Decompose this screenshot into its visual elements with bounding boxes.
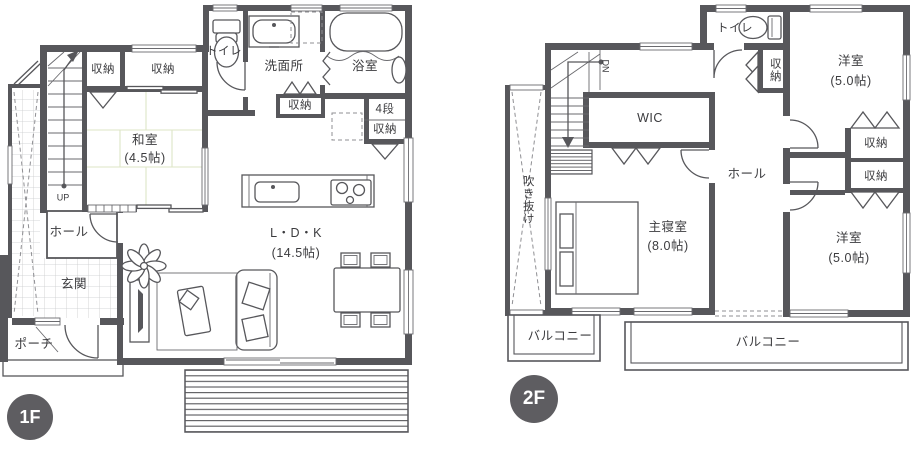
room-label-hall-1f: ホール: [49, 226, 88, 239]
refrigerator-space: [332, 113, 362, 140]
room-label-toilet-1f: トイレ: [206, 46, 242, 58]
room-label-hall-2f: ホール: [727, 168, 766, 181]
room-label-balcony-b: バルコニー: [736, 336, 801, 349]
tatami-floor: [87, 92, 202, 205]
porch-step: [3, 360, 123, 376]
floor2-doors: [681, 50, 818, 210]
plant-icon: [122, 244, 166, 288]
room-label-closet-top: 収納: [768, 58, 780, 83]
floorplan-canvas: 収納 収納 トイレ 洗面所 浴室 収納 4段 収納 和室 (4.5帖) L・D・…: [0, 0, 918, 464]
deck: [185, 370, 408, 432]
room-label-washitsu: 和室: [132, 134, 158, 147]
room-label-ldk-size: (14.5帖): [272, 247, 321, 260]
stairs-2f: [551, 50, 604, 148]
room-label-west-room-a: 洋室: [838, 55, 864, 68]
room-label-washitsu-size: (4.5帖): [124, 152, 165, 165]
room-label-step-storage-bottom: 収納: [373, 124, 397, 136]
floor-badge-1f: 1F: [7, 394, 53, 440]
room-label-entrance: 玄関: [61, 278, 87, 291]
stairs-1f: [48, 50, 82, 189]
kitchen-counter: [242, 175, 374, 207]
bed: [556, 202, 638, 294]
toilet-1f: [213, 20, 240, 67]
room-label-closet-c: 収納: [288, 100, 312, 112]
stairs-dn-label: DN: [601, 60, 610, 73]
room-label-closet-mid-b: 収納: [864, 171, 888, 183]
stairs-up-label: UP: [57, 194, 70, 203]
room-label-wic: WIC: [637, 112, 663, 125]
sliding-door: [137, 205, 203, 212]
room-label-west-room-b-size: (5.0帖): [828, 252, 869, 265]
room-label-washroom: 洗面所: [264, 60, 303, 73]
room-label-ldk: L・D・K: [270, 227, 322, 240]
understair-hatch: [548, 150, 592, 174]
room-label-closet-b: 収納: [151, 64, 175, 76]
room-label-porch: ポーチ: [14, 338, 53, 351]
room-label-balcony-a: バルコニー: [528, 330, 593, 343]
tv-board: [130, 280, 149, 342]
room-label-master-size: (8.0帖): [647, 240, 688, 253]
room-label-master: 主寝室: [648, 221, 687, 234]
room-label-closet-mid-a: 収納: [864, 138, 888, 150]
room-label-toilet-2f: トイレ: [717, 23, 753, 35]
room-label-west-room-b: 洋室: [836, 232, 862, 245]
room-label-west-room-a-size: (5.0帖): [830, 75, 871, 88]
room-label-step-storage-top: 4段: [376, 104, 395, 116]
room-label-closet-a: 収納: [91, 64, 115, 76]
room-label-bath: 浴室: [352, 60, 378, 73]
floor-badge-2f: 2F: [510, 375, 558, 423]
rug-and-table: [157, 273, 237, 350]
sofa: [236, 270, 277, 350]
room-label-void: 吹き抜け: [521, 175, 533, 225]
dining-table: [334, 253, 400, 327]
